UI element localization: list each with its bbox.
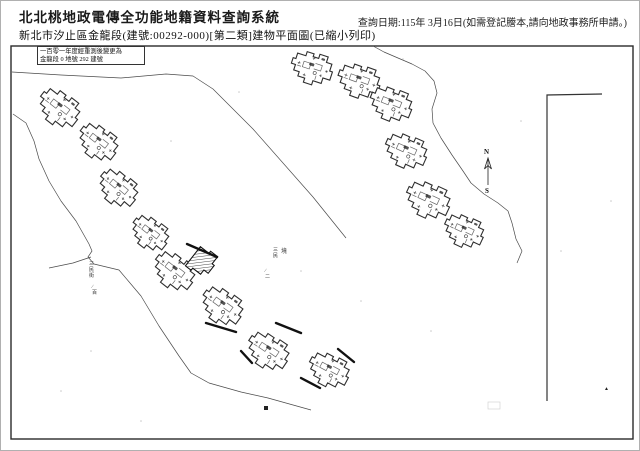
building-outline bbox=[31, 82, 86, 135]
building-outline bbox=[91, 163, 143, 214]
building-cluster bbox=[91, 163, 143, 214]
building-outline bbox=[303, 347, 355, 395]
building-cluster bbox=[194, 280, 249, 332]
map-label: ∕百 bbox=[91, 284, 97, 296]
map-label: 境 bbox=[281, 247, 287, 255]
scan-noise-speck bbox=[300, 270, 302, 272]
building-cluster bbox=[146, 245, 201, 298]
scan-noise-speck bbox=[560, 250, 562, 252]
building-outline bbox=[240, 326, 295, 378]
building-cluster bbox=[439, 209, 489, 254]
building-cluster bbox=[71, 117, 123, 168]
compass-north-label: N bbox=[484, 148, 489, 156]
scan-noise-speck bbox=[90, 350, 92, 352]
building-outline bbox=[146, 245, 201, 298]
wall-line bbox=[241, 351, 252, 363]
survey-monument-mark bbox=[264, 406, 268, 410]
building-outline bbox=[194, 280, 249, 332]
scan-noise-speck bbox=[402, 58, 404, 60]
building-outline bbox=[125, 209, 174, 257]
building-cluster bbox=[287, 47, 337, 90]
building-outline bbox=[439, 209, 489, 254]
scan-noise-speck bbox=[430, 330, 432, 332]
resurvey-note-line1: 一百零一年度經重測後變更為 bbox=[40, 48, 142, 56]
wall-line bbox=[301, 378, 320, 388]
building-cluster bbox=[400, 175, 456, 225]
scan-noise-speck bbox=[520, 120, 522, 122]
compass-south-label: S bbox=[485, 187, 489, 195]
resurvey-note-line2: 金龍段 0 地號 292 建號 bbox=[40, 56, 142, 64]
building-outline bbox=[379, 128, 431, 175]
scan-noise-speck bbox=[238, 91, 240, 93]
building-floorplan-map: NS三民街∕百三民∕二境▲ bbox=[1, 1, 640, 451]
building-outline bbox=[400, 175, 456, 225]
scan-noise-speck bbox=[170, 140, 172, 142]
faint-stamp-mark bbox=[488, 402, 500, 409]
building-cluster bbox=[379, 128, 431, 175]
scan-noise-speck bbox=[360, 300, 362, 302]
resurvey-note-box: 一百零一年度經重測後變更為 金龍段 0 地號 292 建號 bbox=[37, 46, 145, 65]
map-label: ∕二 bbox=[264, 268, 270, 280]
contour-line bbox=[49, 257, 91, 268]
scan-noise-speck bbox=[610, 200, 612, 202]
scan-noise-speck bbox=[60, 390, 62, 392]
building-outline bbox=[287, 47, 337, 90]
map-label: 三民 bbox=[273, 247, 278, 259]
boundary-line bbox=[547, 94, 602, 401]
map-label: 三民街 bbox=[89, 261, 94, 279]
building-outline bbox=[71, 117, 123, 168]
building-cluster bbox=[240, 326, 295, 378]
building-cluster bbox=[125, 209, 174, 257]
compass-icon: NS bbox=[484, 148, 492, 195]
wall-line bbox=[276, 323, 301, 333]
wall-line bbox=[206, 323, 236, 332]
scan-noise-speck bbox=[140, 420, 142, 422]
building-cluster bbox=[303, 347, 355, 395]
land-registry-printout: 北北桃地政電傳全功能地籍資料查詢系統 查詢日期:115年 3月16日(如需登記謄… bbox=[0, 0, 640, 451]
triangle-mark: ▲ bbox=[604, 387, 609, 392]
building-cluster bbox=[31, 82, 86, 135]
